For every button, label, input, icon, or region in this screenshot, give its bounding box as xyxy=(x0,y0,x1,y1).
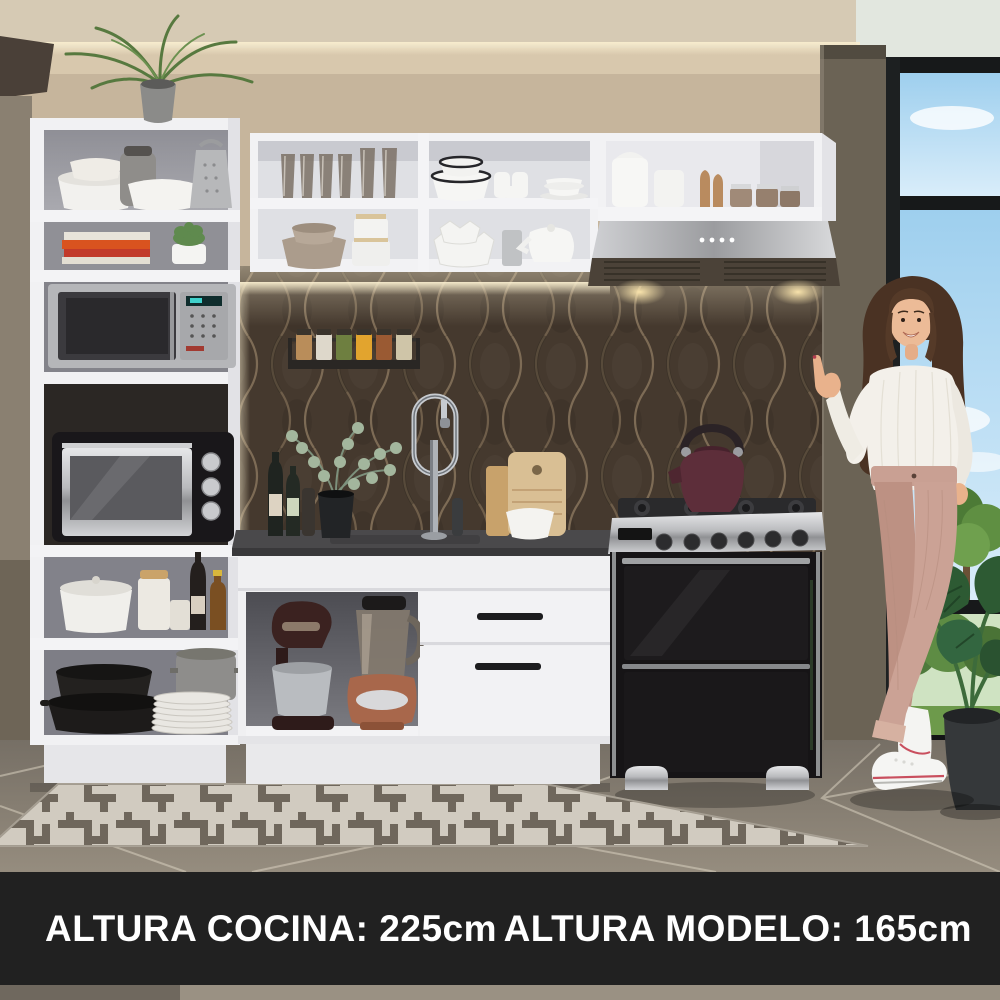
black-pans xyxy=(40,664,164,734)
caption-kitchen-height: ALTURA COCINA: 225cm xyxy=(45,908,497,950)
white-jar xyxy=(654,170,684,207)
canister xyxy=(138,570,170,630)
model-face xyxy=(890,297,932,347)
stove-foot-left xyxy=(625,766,668,790)
oven-door-lower xyxy=(624,672,808,772)
stove-foot-right xyxy=(766,766,809,790)
left-tall-cabinet xyxy=(30,118,240,783)
window-pane-top xyxy=(900,73,1000,196)
ceiling-beam xyxy=(0,36,54,98)
upper-middle-cabinet xyxy=(250,133,598,272)
caption-model-height: ALTURA MODELO: 165cm xyxy=(504,908,972,950)
ceiling xyxy=(0,0,890,48)
small-canister xyxy=(170,600,190,630)
left-cabinet-plinth xyxy=(44,745,226,783)
soap-dispenser xyxy=(452,498,463,536)
floor-bottom-strip xyxy=(0,985,1000,1000)
white-canisters xyxy=(352,214,390,266)
sink xyxy=(330,535,480,544)
stove-display xyxy=(618,528,652,540)
rimmed-bowls xyxy=(432,157,490,201)
succulent-pot xyxy=(172,222,206,264)
microwave-display xyxy=(190,298,202,303)
sink-base-cabinet xyxy=(232,530,616,784)
drawer-handle-bottom xyxy=(475,663,541,670)
plate-stack xyxy=(152,692,232,734)
model-neck xyxy=(905,344,918,360)
white-canister-large xyxy=(612,152,648,207)
microwave xyxy=(48,284,236,368)
base-plinth xyxy=(246,744,600,784)
pepper-grinder xyxy=(302,488,315,536)
drawer-stack xyxy=(420,592,610,736)
spec-bar: ALTURA COCINA: 225cm ALTURA MODELO: 165c… xyxy=(0,872,1000,985)
under-cabinet-light xyxy=(238,282,610,295)
toaster-oven xyxy=(52,432,234,542)
hood-light-left xyxy=(614,279,666,305)
cookbooks xyxy=(62,232,150,264)
right-upper-cabinet xyxy=(598,133,836,221)
kitchen-product-photo: ALTURA COCINA: 225cm ALTURA MODELO: 165c… xyxy=(0,0,1000,1000)
box-grater xyxy=(190,141,232,208)
soup-tureen xyxy=(60,576,132,633)
kitchen-scene xyxy=(0,0,1000,1000)
metal-canisters xyxy=(730,184,800,207)
drawer-handle-top xyxy=(477,613,543,620)
white-bowl-counter xyxy=(506,508,554,540)
hood-light-right xyxy=(772,279,824,305)
stand-mixer xyxy=(272,601,334,730)
white-bowl xyxy=(128,179,196,211)
